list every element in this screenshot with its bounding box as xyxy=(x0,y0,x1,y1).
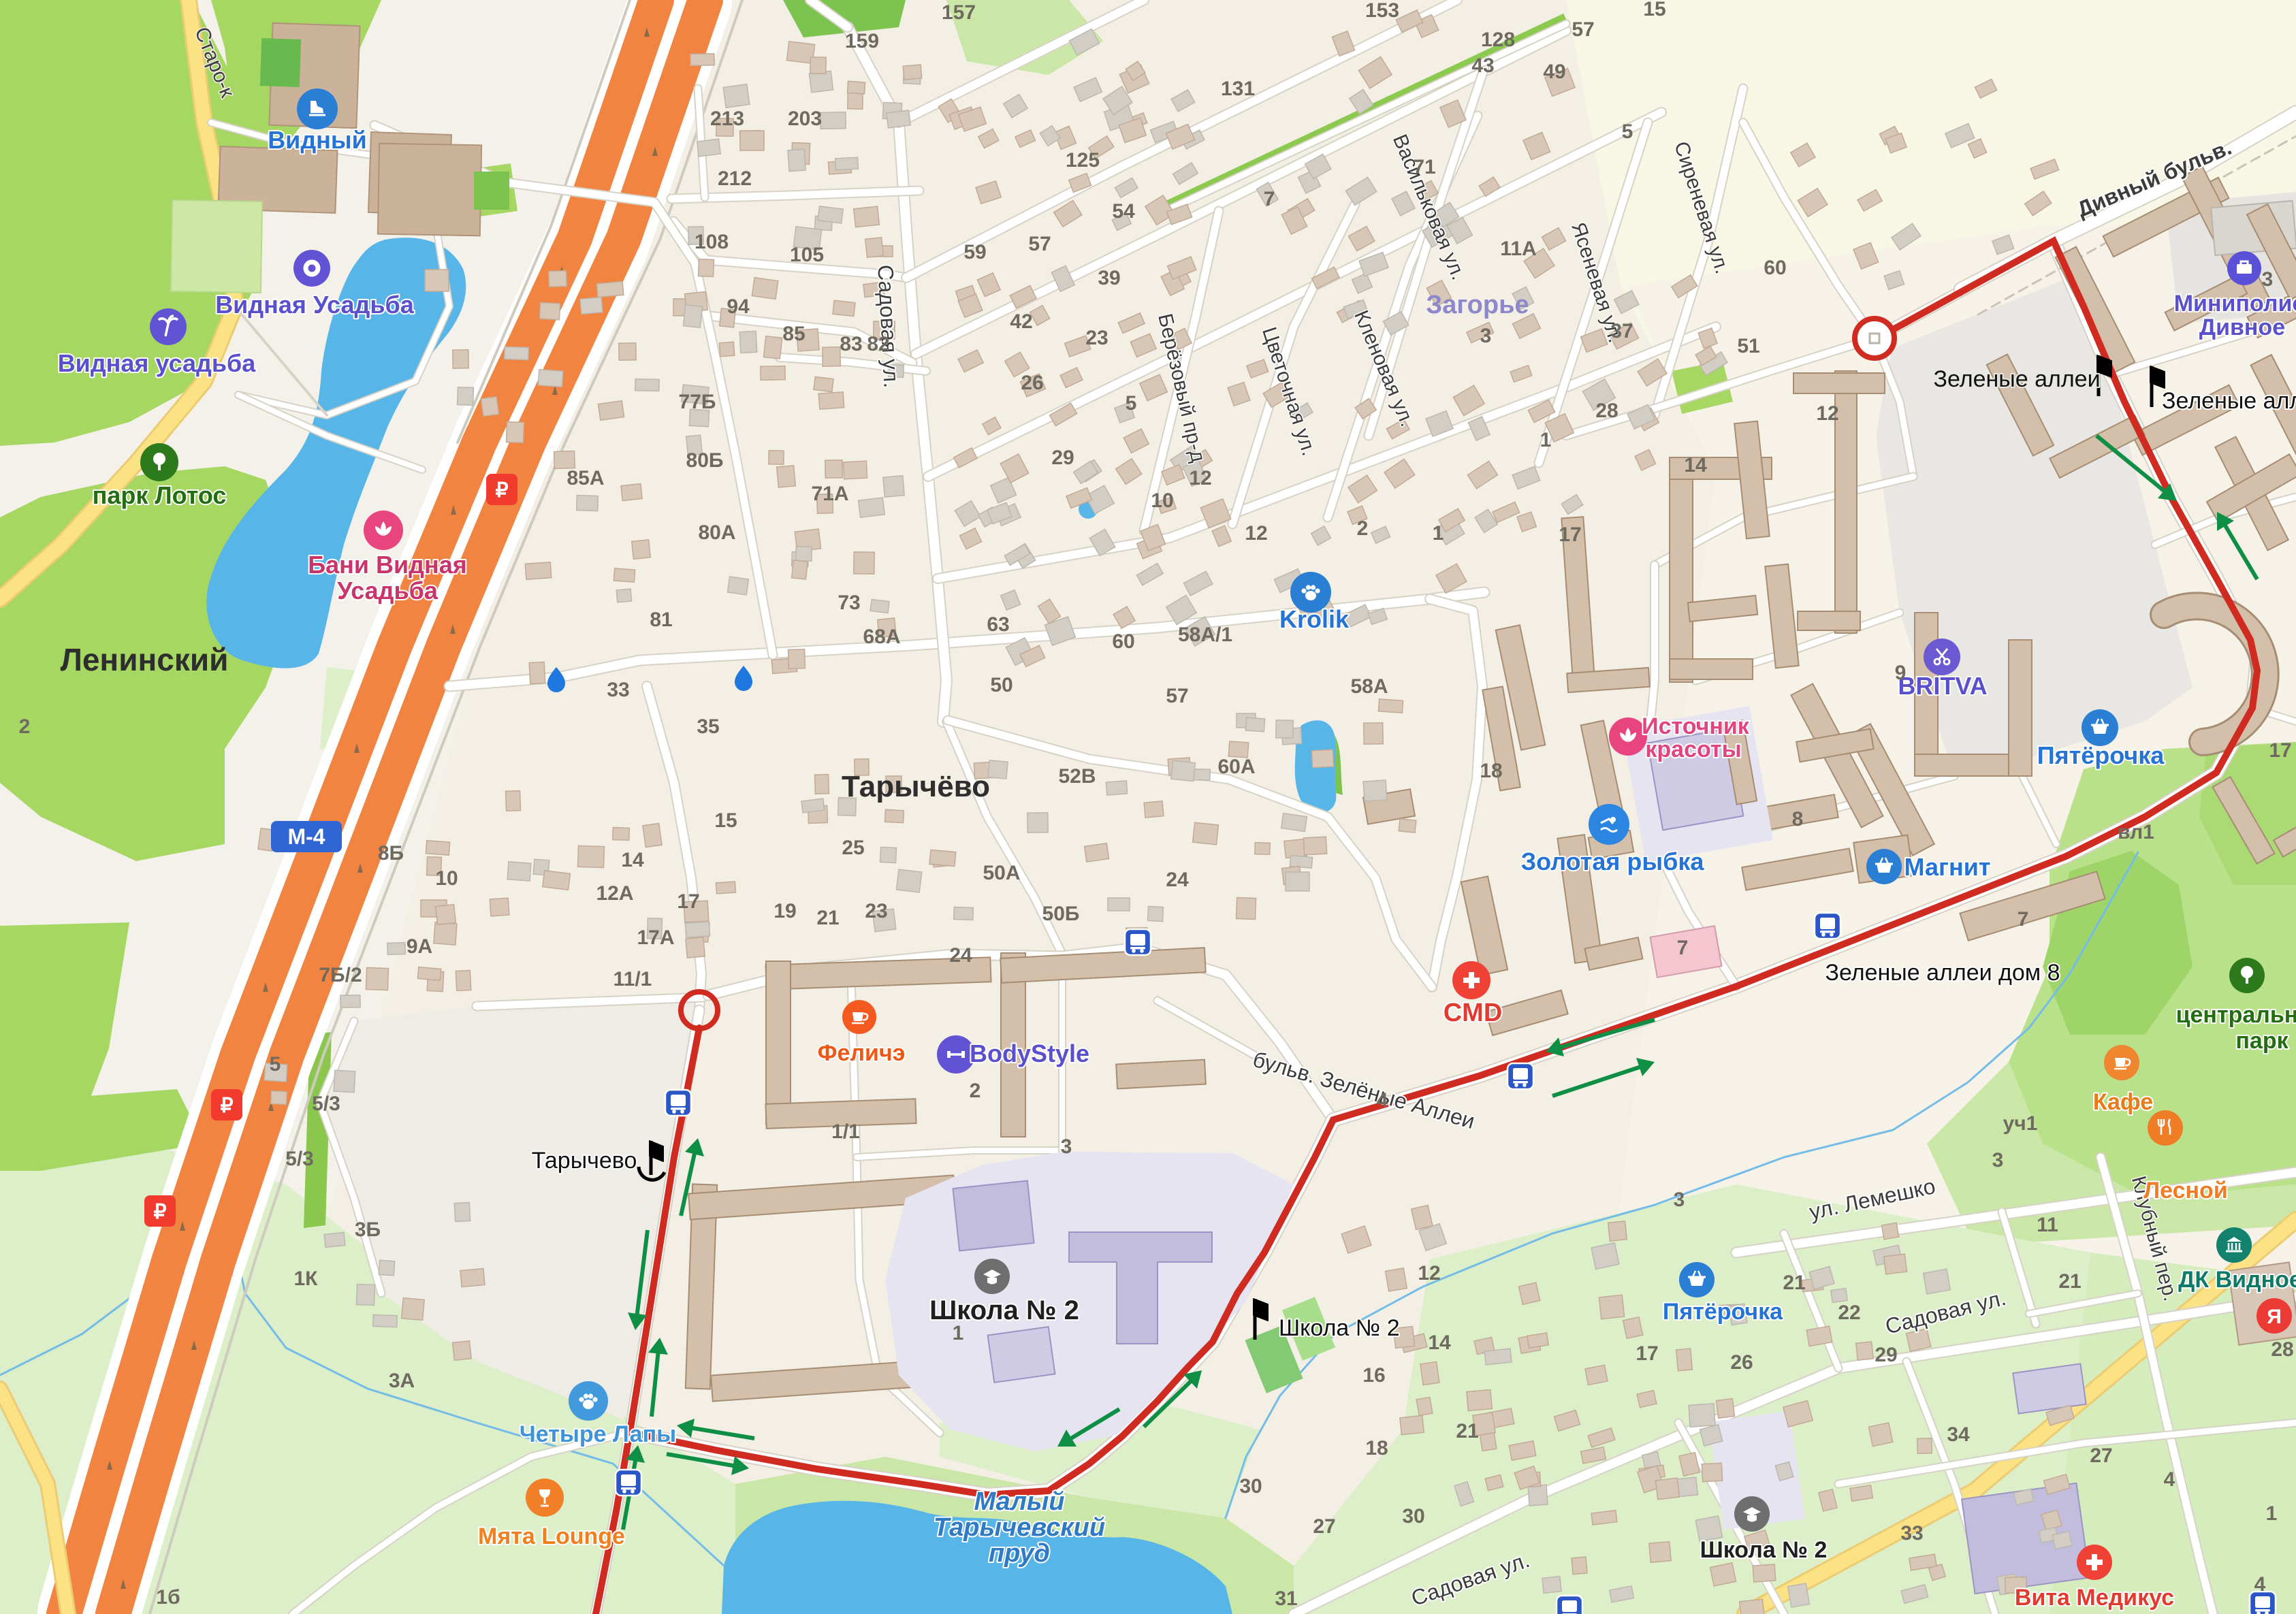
svg-text:Кафе: Кафе xyxy=(2093,1089,2153,1115)
svg-text:68А: 68А xyxy=(863,626,900,648)
svg-text:Миниполис: Миниполис xyxy=(2174,291,2296,317)
svg-text:30: 30 xyxy=(1239,1475,1262,1498)
svg-text:16: 16 xyxy=(1362,1364,1385,1387)
svg-text:7: 7 xyxy=(2018,908,2029,931)
svg-text:уч1: уч1 xyxy=(2003,1112,2038,1135)
svg-text:153: 153 xyxy=(1365,0,1399,22)
svg-text:Загорье: Загорье xyxy=(1426,291,1529,319)
svg-text:58А: 58А xyxy=(1350,675,1388,698)
svg-text:213: 213 xyxy=(710,108,744,130)
svg-text:7: 7 xyxy=(1677,937,1689,959)
svg-text:5: 5 xyxy=(1126,392,1137,415)
svg-text:22: 22 xyxy=(1838,1302,1860,1324)
svg-text:Школа № 2: Школа № 2 xyxy=(1279,1315,1400,1341)
svg-text:21: 21 xyxy=(1456,1420,1478,1442)
svg-text:Источник: Источник xyxy=(1642,713,1750,739)
svg-text:Пятёрочка: Пятёрочка xyxy=(1663,1299,1783,1325)
svg-text:18: 18 xyxy=(1365,1437,1388,1459)
svg-text:Krolik: Krolik xyxy=(1279,605,1350,633)
svg-text:54: 54 xyxy=(1112,200,1135,223)
svg-text:ДК Видное: ДК Видное xyxy=(2178,1267,2296,1293)
svg-text:85А: 85А xyxy=(567,467,604,489)
svg-text:1: 1 xyxy=(2266,1502,2278,1525)
svg-text:60А: 60А xyxy=(1217,756,1255,778)
svg-text:29: 29 xyxy=(1051,447,1074,469)
svg-text:159: 159 xyxy=(845,30,879,52)
svg-text:57: 57 xyxy=(1572,18,1594,41)
svg-text:57: 57 xyxy=(1028,233,1051,255)
svg-text:3: 3 xyxy=(1061,1135,1072,1158)
svg-text:5/3: 5/3 xyxy=(312,1093,340,1115)
svg-text:Тарычёво: Тарычёво xyxy=(842,770,990,803)
svg-text:5/3: 5/3 xyxy=(285,1148,314,1170)
svg-text:33: 33 xyxy=(1900,1522,1923,1545)
svg-text:59: 59 xyxy=(963,241,986,263)
svg-text:94: 94 xyxy=(727,295,750,318)
svg-text:60: 60 xyxy=(1764,257,1786,279)
svg-text:₽: ₽ xyxy=(495,479,508,502)
svg-text:1: 1 xyxy=(1540,429,1552,451)
svg-text:81: 81 xyxy=(650,609,672,631)
svg-text:52В: 52В xyxy=(1058,765,1096,788)
svg-text:73: 73 xyxy=(838,592,860,614)
svg-text:42: 42 xyxy=(1010,310,1032,333)
svg-text:31: 31 xyxy=(1275,1587,1297,1610)
svg-text:Малый: Малый xyxy=(974,1487,1064,1516)
svg-text:3А: 3А xyxy=(389,1370,415,1392)
svg-text:₽: ₽ xyxy=(220,1095,233,1117)
svg-text:4: 4 xyxy=(2254,1573,2266,1596)
svg-text:39: 39 xyxy=(1098,267,1120,289)
svg-text:1: 1 xyxy=(1433,522,1444,545)
svg-text:Усадьба: Усадьба xyxy=(337,577,439,604)
svg-text:1К: 1К xyxy=(294,1268,319,1290)
svg-text:21: 21 xyxy=(2058,1270,2081,1293)
svg-text:11А: 11А xyxy=(1500,238,1536,260)
svg-text:10: 10 xyxy=(1151,489,1173,512)
svg-text:Бани Видная: Бани Видная xyxy=(308,551,467,579)
svg-text:50А: 50А xyxy=(983,862,1020,884)
svg-text:₽: ₽ xyxy=(153,1201,166,1223)
svg-text:85: 85 xyxy=(782,323,805,345)
svg-text:82: 82 xyxy=(867,333,889,355)
svg-text:Пятёрочка: Пятёрочка xyxy=(2037,741,2165,769)
svg-text:15: 15 xyxy=(714,809,737,832)
svg-text:131: 131 xyxy=(1221,78,1255,100)
svg-text:23: 23 xyxy=(1085,327,1108,349)
svg-text:7Б/2: 7Б/2 xyxy=(319,964,362,986)
svg-text:Тарычево: Тарычево xyxy=(532,1148,637,1174)
svg-text:12: 12 xyxy=(1245,522,1267,545)
svg-text:19: 19 xyxy=(774,900,796,922)
svg-text:128: 128 xyxy=(1481,29,1515,51)
svg-text:35: 35 xyxy=(697,715,719,738)
svg-text:3Б: 3Б xyxy=(355,1218,381,1241)
svg-text:51: 51 xyxy=(1737,335,1759,357)
svg-text:212: 212 xyxy=(718,167,752,190)
svg-text:3: 3 xyxy=(1992,1149,2004,1172)
svg-text:77Б: 77Б xyxy=(679,391,716,413)
svg-text:21: 21 xyxy=(816,907,839,929)
svg-text:Школа № 2: Школа № 2 xyxy=(1700,1537,1828,1563)
svg-text:Видная усадьба: Видная усадьба xyxy=(58,349,257,377)
svg-text:Тарычевский: Тарычевский xyxy=(934,1513,1105,1542)
svg-text:12: 12 xyxy=(1418,1262,1440,1285)
svg-text:80А: 80А xyxy=(698,521,735,544)
svg-text:14: 14 xyxy=(621,849,644,871)
svg-text:Золотая рыбка: Золотая рыбка xyxy=(1521,848,1705,875)
svg-text:Феличэ: Феличэ xyxy=(818,1040,906,1066)
svg-text:Школа № 2: Школа № 2 xyxy=(929,1295,1079,1325)
svg-text:18: 18 xyxy=(1480,760,1502,782)
svg-text:27: 27 xyxy=(1313,1515,1335,1538)
svg-text:12: 12 xyxy=(1816,402,1838,425)
svg-text:17: 17 xyxy=(1559,523,1581,546)
svg-text:3: 3 xyxy=(1674,1189,1685,1211)
svg-text:108: 108 xyxy=(695,231,729,253)
svg-text:вл1: вл1 xyxy=(2118,821,2154,843)
svg-text:25: 25 xyxy=(842,837,864,859)
svg-text:21: 21 xyxy=(1783,1272,1805,1294)
svg-text:50: 50 xyxy=(990,674,1013,696)
svg-text:26: 26 xyxy=(1730,1351,1753,1374)
svg-text:28: 28 xyxy=(1595,400,1618,422)
svg-text:24: 24 xyxy=(1166,869,1189,891)
svg-text:CMD: CMD xyxy=(1444,999,1503,1027)
svg-text:Ленинский: Ленинский xyxy=(61,642,229,677)
svg-text:203: 203 xyxy=(788,108,822,130)
svg-text:26: 26 xyxy=(1021,372,1043,394)
svg-text:24: 24 xyxy=(949,944,972,967)
svg-text:14: 14 xyxy=(1428,1331,1451,1354)
svg-text:12: 12 xyxy=(1189,467,1211,489)
svg-text:9А: 9А xyxy=(406,935,432,958)
svg-text:парк: парк xyxy=(2235,1028,2289,1054)
svg-text:11: 11 xyxy=(2037,1214,2058,1236)
svg-text:парк Лотос: парк Лотос xyxy=(93,481,227,509)
svg-text:3: 3 xyxy=(1480,325,1492,347)
svg-text:33: 33 xyxy=(607,679,629,701)
svg-text:11/1: 11/1 xyxy=(613,968,652,990)
svg-text:красоты: красоты xyxy=(1645,737,1741,762)
svg-text:1/1: 1/1 xyxy=(831,1120,860,1143)
svg-text:Зеленые аллеи: Зеленые аллеи xyxy=(1933,366,2100,392)
svg-text:157: 157 xyxy=(942,1,976,24)
svg-text:17: 17 xyxy=(1636,1342,1658,1365)
svg-text:2: 2 xyxy=(1357,517,1369,540)
svg-text:Вита Медикус: Вита Медикус xyxy=(2015,1585,2174,1611)
svg-text:125: 125 xyxy=(1066,149,1100,172)
svg-text:71: 71 xyxy=(1413,156,1435,178)
svg-text:Мята Lounge: Мята Lounge xyxy=(478,1523,625,1549)
svg-text:Лесной: Лесной xyxy=(2143,1178,2227,1204)
svg-text:50Б: 50Б xyxy=(1042,903,1080,925)
svg-text:58А/1: 58А/1 xyxy=(1178,624,1232,646)
svg-text:BRITVA: BRITVA xyxy=(1898,672,1987,700)
svg-text:Магнит: Магнит xyxy=(1904,853,1991,881)
svg-text:Видный: Видный xyxy=(268,126,367,154)
svg-text:49: 49 xyxy=(1543,61,1565,83)
svg-text:83: 83 xyxy=(840,333,862,355)
svg-text:Зеленые аллеи: Зеленые аллеи xyxy=(2162,388,2296,414)
svg-text:4: 4 xyxy=(1377,1089,1388,1112)
svg-text:28: 28 xyxy=(2271,1338,2293,1361)
svg-text:2: 2 xyxy=(970,1080,981,1102)
svg-text:14: 14 xyxy=(1684,454,1707,477)
svg-text:63: 63 xyxy=(987,613,1009,636)
svg-text:центральны: центральны xyxy=(2176,1002,2296,1028)
svg-text:43: 43 xyxy=(1471,54,1494,77)
svg-text:8: 8 xyxy=(1792,808,1804,830)
svg-text:Дивное: Дивное xyxy=(2199,314,2285,340)
svg-text:1б: 1б xyxy=(156,1586,180,1609)
svg-text:2: 2 xyxy=(19,715,31,738)
svg-text:17: 17 xyxy=(2269,739,2291,762)
svg-text:34: 34 xyxy=(1947,1423,1970,1446)
svg-text:5: 5 xyxy=(270,1053,281,1076)
svg-text:8Б: 8Б xyxy=(378,842,404,865)
svg-text:3: 3 xyxy=(2262,268,2274,291)
svg-text:30: 30 xyxy=(1402,1505,1424,1528)
svg-text:пруд: пруд xyxy=(989,1539,1050,1568)
svg-text:Зеленые аллеи дом 8: Зеленые аллеи дом 8 xyxy=(1825,960,2060,986)
svg-text:37: 37 xyxy=(1610,320,1633,342)
svg-text:15: 15 xyxy=(1643,0,1665,20)
svg-text:М-4: М-4 xyxy=(287,824,325,849)
svg-text:17А: 17А xyxy=(637,926,674,949)
svg-text:12А: 12А xyxy=(596,882,633,905)
svg-text:17: 17 xyxy=(677,890,699,913)
svg-text:27: 27 xyxy=(2090,1444,2112,1467)
svg-text:71А: 71А xyxy=(811,483,848,505)
svg-text:9: 9 xyxy=(1895,662,1907,684)
svg-text:23: 23 xyxy=(865,900,887,922)
svg-text:10: 10 xyxy=(435,867,458,890)
svg-text:1: 1 xyxy=(953,1322,964,1344)
svg-text:7: 7 xyxy=(1264,188,1275,210)
svg-text:80Б: 80Б xyxy=(686,449,724,472)
svg-text:5: 5 xyxy=(1622,120,1633,143)
svg-text:57: 57 xyxy=(1166,685,1188,707)
svg-text:Я: Я xyxy=(2267,1306,2282,1328)
svg-text:29: 29 xyxy=(1875,1344,1897,1366)
svg-text:60: 60 xyxy=(1112,630,1134,653)
svg-text:105: 105 xyxy=(790,244,824,266)
svg-text:Четыре Лапы: Четыре Лапы xyxy=(520,1421,676,1447)
svg-text:Видная Усадьба: Видная Усадьба xyxy=(215,291,415,319)
svg-text:4: 4 xyxy=(2164,1468,2175,1491)
svg-text:BodyStyle: BodyStyle xyxy=(970,1039,1089,1067)
